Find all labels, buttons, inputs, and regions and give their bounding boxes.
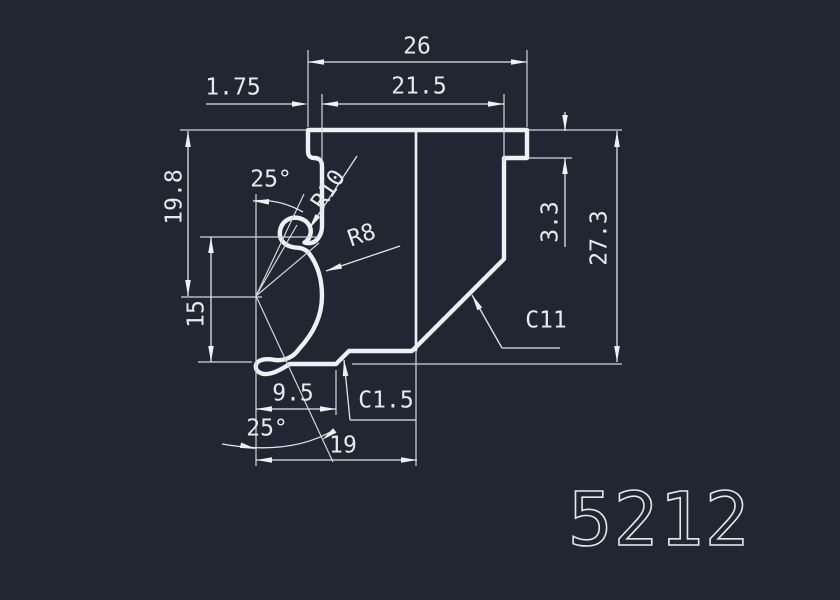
- dim-label-chamfer-bottom: C1.5: [358, 390, 413, 413]
- dim-label-width-overall: 26: [403, 36, 431, 59]
- dim-label-width-bottom-inner: 9.5: [272, 383, 314, 406]
- dim-label-offset-left: 1.75: [205, 77, 260, 100]
- dim-label-height-overall: 27.3: [589, 210, 612, 265]
- part-number-text: 5212: [568, 483, 750, 557]
- dim-label-step-right: 3.3: [540, 201, 563, 243]
- dim-label-angle-lower: 25°: [246, 418, 288, 441]
- dim-label-width-inner: 21.5: [391, 76, 446, 99]
- dim-label-angle-upper: 25°: [250, 169, 292, 192]
- dim-label-height-left-lower: 15: [186, 300, 209, 328]
- profile-path: [256, 130, 527, 374]
- dim-label-width-bottom: 19: [329, 435, 357, 458]
- dim-label-height-left-upper: 19.8: [164, 169, 187, 224]
- cad-drawing-viewport: 26 21.5 1.75 19.8 15 25° R10 R8 3.3 27.3…: [0, 0, 840, 600]
- dim-label-chamfer-right: C11: [525, 310, 567, 333]
- profile-outline: [256, 130, 527, 374]
